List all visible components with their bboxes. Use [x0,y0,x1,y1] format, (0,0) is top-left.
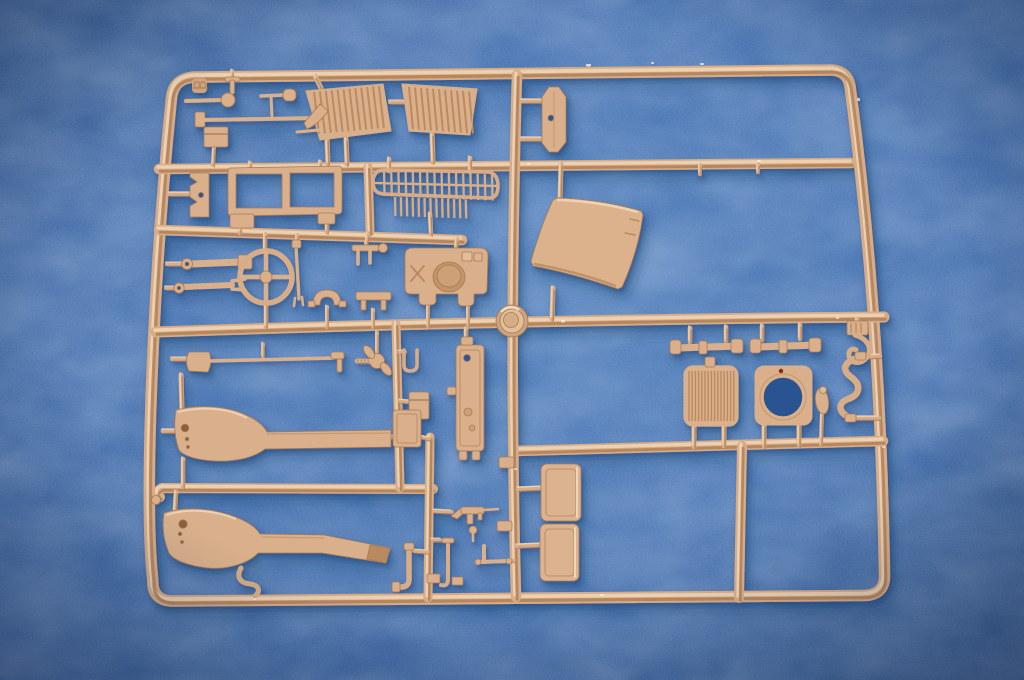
model-kit-sprue-photo [0,0,1024,680]
photo-vignette [0,0,1024,680]
photo-stage [0,0,1024,680]
